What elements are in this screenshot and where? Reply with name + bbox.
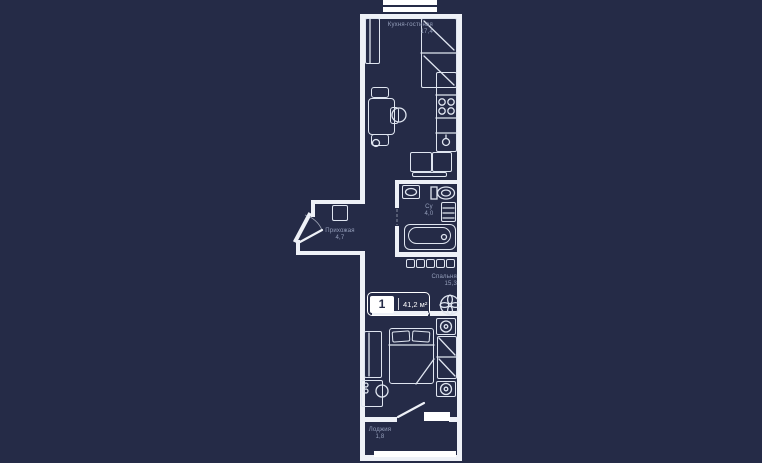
- window-loggia: [374, 451, 456, 457]
- room-label-hallway: Прихожая 4,7: [320, 228, 360, 242]
- bedroom-wardrobe-right: [437, 336, 457, 379]
- closet-section: [436, 259, 445, 268]
- nightstand-top: [436, 318, 456, 335]
- wall-bedroom-bottom-right: [449, 417, 462, 422]
- floor-plan: Кухня-гостиная 17,4 Прихожая 4,7 Су 4,0 …: [0, 0, 762, 463]
- wall-hall-top: [311, 200, 365, 204]
- room-name: Лоджия: [362, 427, 398, 434]
- window-top-outer: [383, 0, 437, 5]
- window-bedroom-loggia: [424, 412, 450, 421]
- wall-right: [457, 14, 462, 461]
- wall-bedroom-top-b: [430, 311, 462, 316]
- room-area: 1,8: [362, 434, 398, 441]
- pillow-right: [412, 330, 431, 342]
- apartment-badge: 1 41,2 м²: [367, 292, 430, 316]
- dining-chair-bottom: [371, 134, 389, 146]
- total-area: 41,2 м²: [403, 300, 427, 309]
- bathtub-inner: [408, 227, 451, 244]
- hall-cabinet: [332, 205, 348, 221]
- kitchen-island-b: [432, 152, 452, 172]
- wall-hall-bottom: [296, 251, 365, 255]
- kitchen-island-a: [410, 152, 432, 172]
- wall-bath-left-a: [395, 184, 399, 208]
- nightstand-bottom: [436, 381, 456, 397]
- rooms-count: 1: [370, 296, 394, 313]
- closet-section: [446, 259, 455, 268]
- room-area: 4,0: [419, 211, 439, 218]
- room-name: Прихожая: [320, 228, 360, 235]
- toilet: [431, 187, 455, 199]
- closet-section: [406, 259, 415, 268]
- room-area: 15,3: [419, 281, 457, 288]
- room-area: 4,7: [320, 235, 360, 242]
- room-name: Кухня-гостиная: [385, 22, 433, 29]
- wall-kitchen-bath-divider: [395, 180, 462, 184]
- wall-bedroom-bottom-left: [360, 417, 397, 422]
- badge-divider: [398, 298, 399, 310]
- kitchen-island-strip: [412, 172, 447, 177]
- closet-section: [416, 259, 425, 268]
- bathtub: [404, 224, 456, 250]
- dining-chair-right-back: [390, 107, 399, 124]
- bath-sink: [402, 185, 420, 199]
- kitchen-counter: [436, 72, 457, 152]
- closet-section: [426, 259, 435, 268]
- window-top-inner: [383, 7, 437, 12]
- pillow-left: [392, 330, 411, 342]
- room-label-bedroom: Спальня 15,3: [419, 274, 457, 288]
- wall-hall-chamfer: [293, 212, 312, 243]
- room-label-loggia: Лоджия 1,8: [362, 427, 398, 441]
- dining-chair-top: [371, 87, 389, 98]
- room-label-kitchen-living: Кухня-гостиная 17,4: [385, 22, 433, 36]
- bedroom-wardrobe-left: [364, 331, 382, 378]
- room-name: Спальня: [419, 274, 457, 281]
- room-area: 17,4: [385, 29, 433, 36]
- wall-bath-bottom: [395, 252, 462, 257]
- towel-rail: [441, 202, 456, 222]
- bedroom-desk: [361, 380, 383, 407]
- room-name: Су: [419, 204, 439, 211]
- room-label-bathroom: Су 4,0: [419, 204, 439, 218]
- kitchen-cabinet: [365, 18, 380, 64]
- loggia-door: [398, 403, 424, 417]
